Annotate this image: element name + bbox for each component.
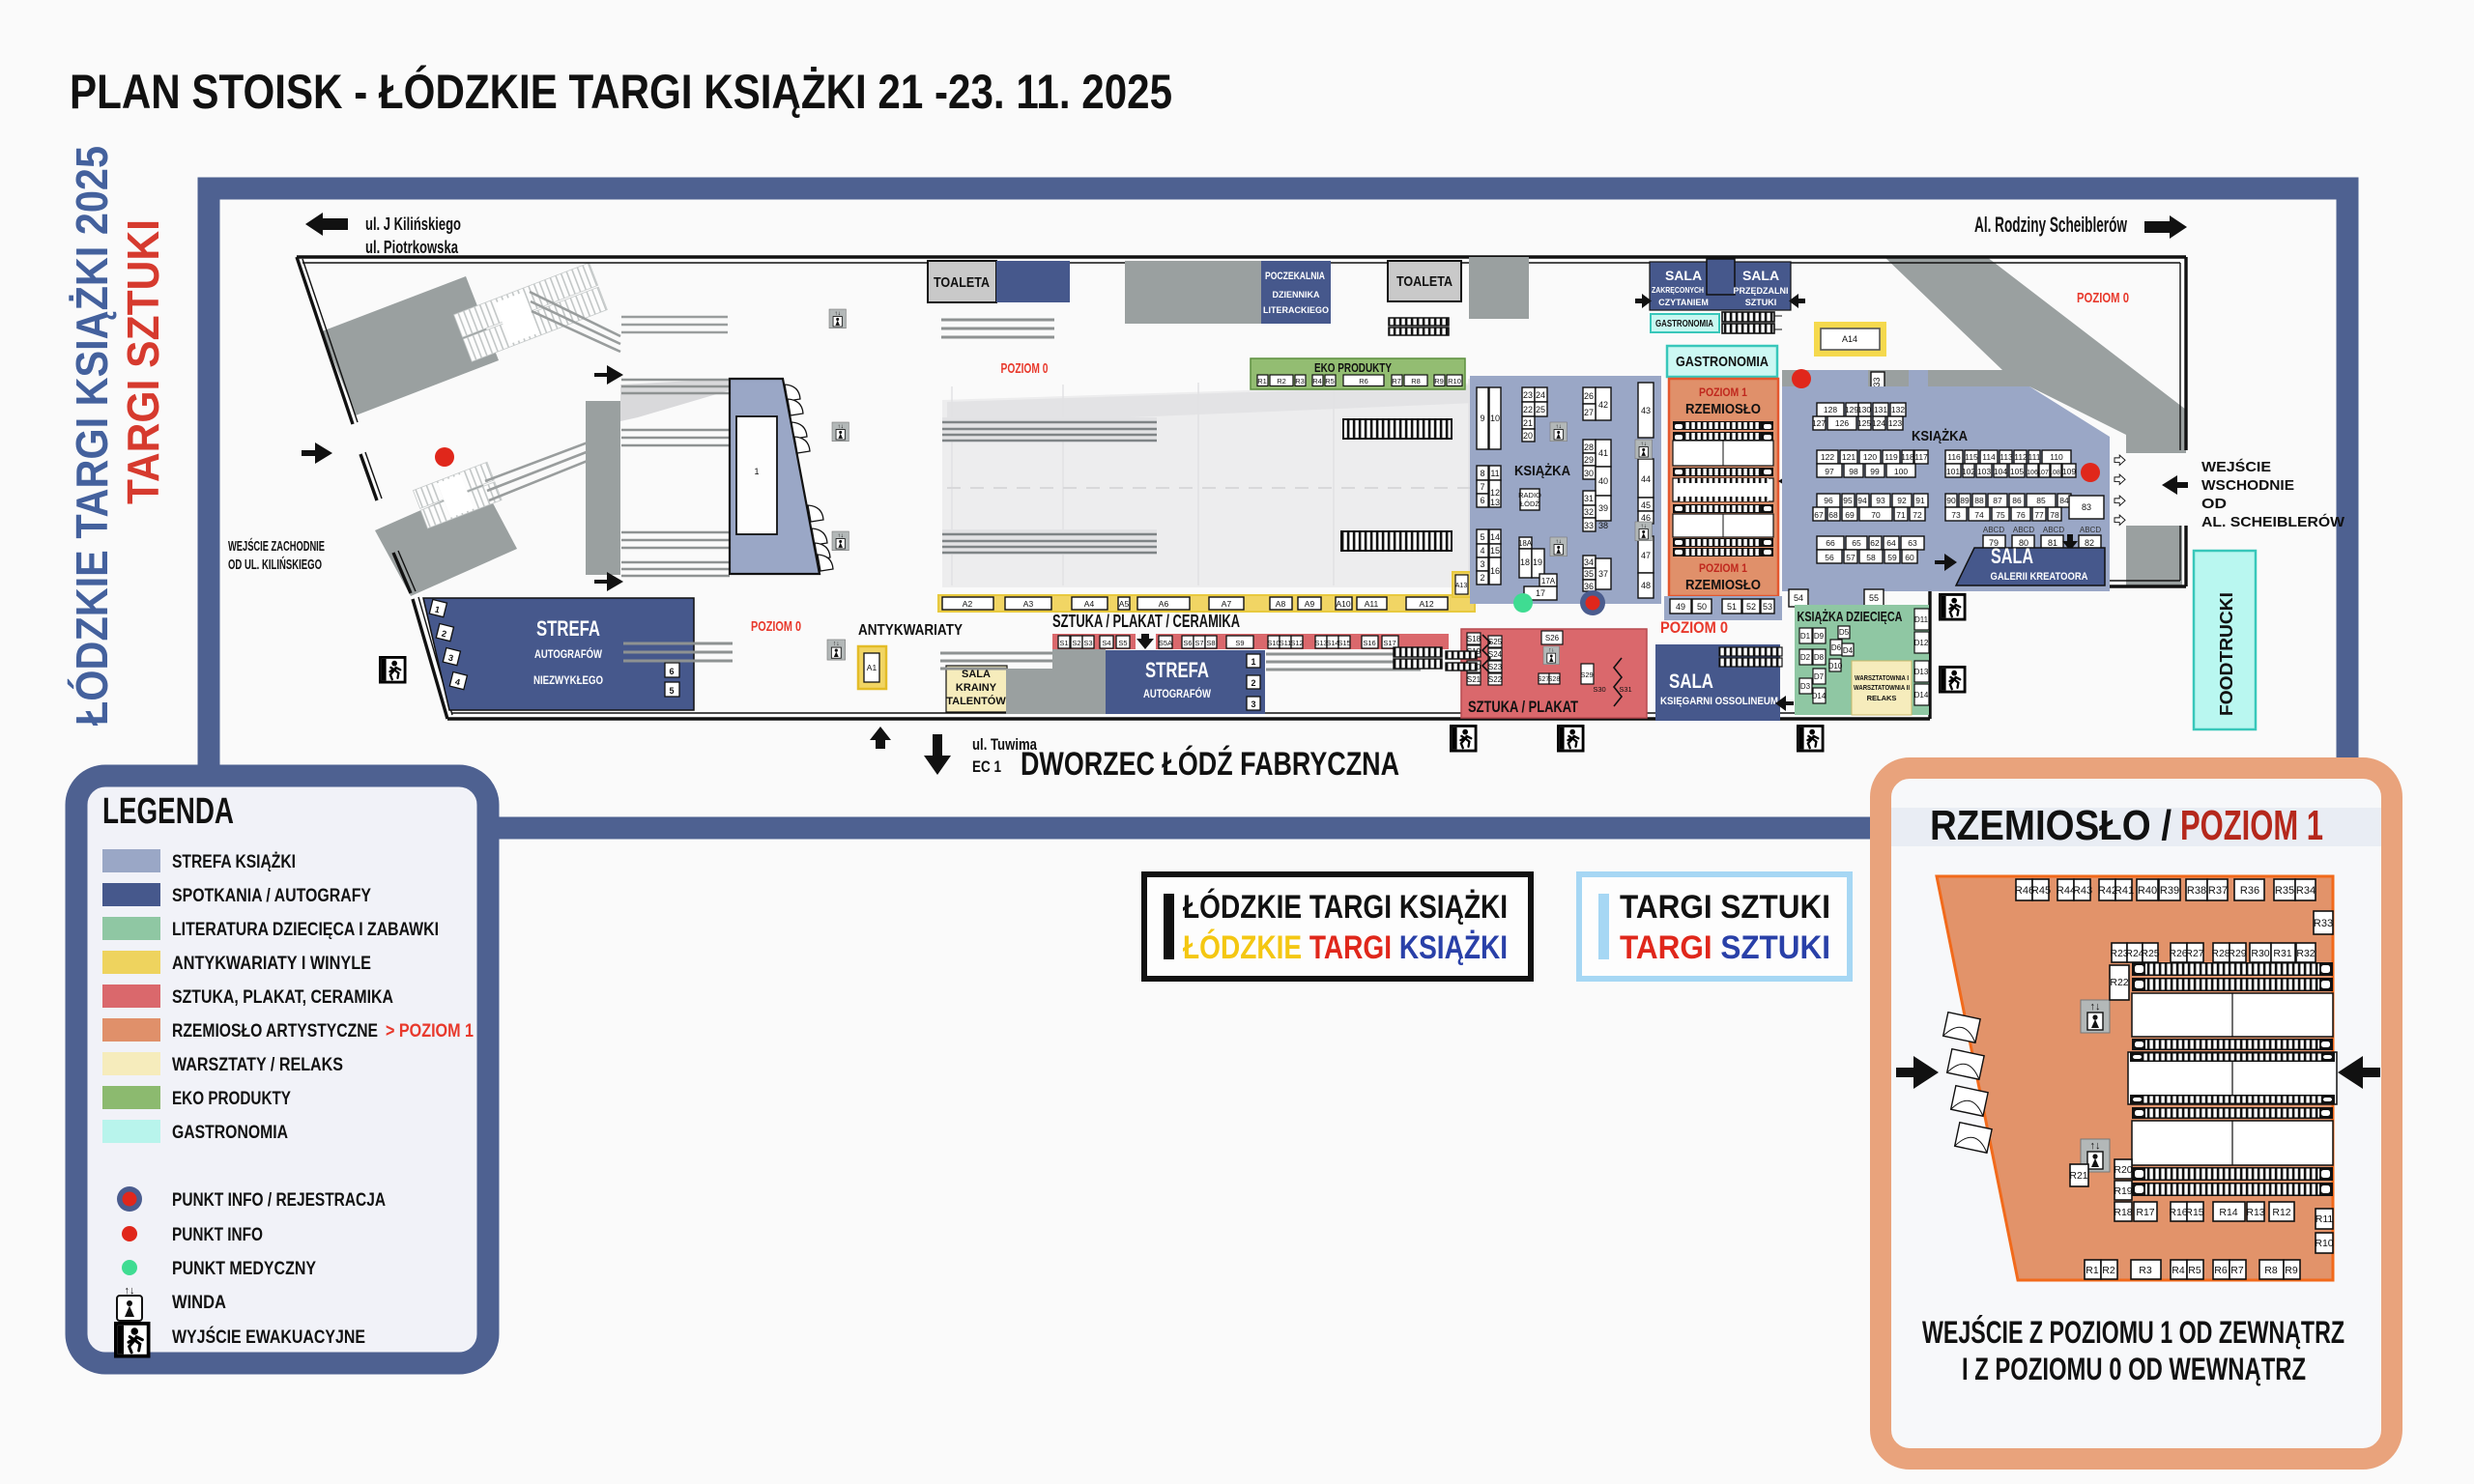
svg-text:108: 108 xyxy=(2049,470,2060,476)
svg-text:D7: D7 xyxy=(1814,672,1825,681)
svg-text:R41: R41 xyxy=(2114,885,2134,897)
svg-text:R10: R10 xyxy=(1448,377,1461,385)
svg-text:113: 113 xyxy=(1999,452,2013,462)
svg-text:117: 117 xyxy=(1914,452,1928,462)
svg-text:KRAINY: KRAINY xyxy=(956,682,997,694)
svg-text:104: 104 xyxy=(1994,467,2007,476)
svg-text:S4: S4 xyxy=(1102,639,1110,647)
svg-text:PUNKT INFO / REJESTRACJA: PUNKT INFO / REJESTRACJA xyxy=(172,1190,386,1211)
svg-text:S17: S17 xyxy=(1383,639,1395,647)
svg-text:102: 102 xyxy=(1962,467,1975,476)
svg-text:121: 121 xyxy=(1842,452,1855,462)
svg-text:RELAKS: RELAKS xyxy=(1867,694,1897,702)
svg-text:41: 41 xyxy=(1598,448,1608,458)
svg-text:11: 11 xyxy=(1490,469,1499,478)
svg-text:SALA: SALA xyxy=(1665,268,1702,283)
svg-text:KSIĄŻKA DZIECIĘCA: KSIĄŻKA DZIECIĘCA xyxy=(1798,609,1903,625)
svg-text:14: 14 xyxy=(1490,532,1500,542)
svg-text:59: 59 xyxy=(1887,553,1897,562)
svg-text:65: 65 xyxy=(1852,538,1861,548)
svg-text:FOODTRUCKI: FOODTRUCKI xyxy=(2217,592,2236,716)
svg-text:D6: D6 xyxy=(1831,643,1842,652)
svg-text:D3: D3 xyxy=(1800,682,1811,691)
svg-text:68: 68 xyxy=(1828,510,1838,520)
svg-text:KSIĄŻKA: KSIĄŻKA xyxy=(1912,428,1968,444)
svg-text:126: 126 xyxy=(1835,418,1849,428)
svg-text:40: 40 xyxy=(1598,476,1608,486)
svg-text:PUNKT INFO: PUNKT INFO xyxy=(172,1225,263,1245)
svg-text:POZIOM 1: POZIOM 1 xyxy=(1699,563,1748,575)
svg-text:AUTOGRAFÓW: AUTOGRAFÓW xyxy=(1143,686,1212,700)
svg-text:R22: R22 xyxy=(2110,977,2128,988)
svg-text:SALA: SALA xyxy=(1742,268,1779,283)
svg-text:A7: A7 xyxy=(1222,599,1232,609)
svg-text:47: 47 xyxy=(1641,551,1651,560)
svg-text:R3: R3 xyxy=(2139,1265,2152,1276)
svg-text:91: 91 xyxy=(1915,496,1925,505)
svg-text:R5: R5 xyxy=(2188,1265,2201,1276)
svg-text:R15: R15 xyxy=(2185,1207,2203,1218)
svg-text:R19: R19 xyxy=(2114,1185,2132,1197)
svg-text:> POZIOM 1: > POZIOM 1 xyxy=(386,1021,474,1042)
svg-text:R4: R4 xyxy=(1312,377,1322,385)
svg-text:RADIO: RADIO xyxy=(1518,491,1541,499)
svg-text:R33: R33 xyxy=(2314,918,2333,929)
svg-text:WARSZTATOWNIA I: WARSZTATOWNIA I xyxy=(1855,673,1909,682)
svg-text:R18: R18 xyxy=(2114,1207,2132,1218)
svg-text:22: 22 xyxy=(1523,405,1533,414)
svg-text:51: 51 xyxy=(1727,602,1737,612)
svg-text:R32: R32 xyxy=(2296,948,2315,959)
svg-text:S1: S1 xyxy=(1059,639,1068,647)
svg-text:48: 48 xyxy=(1641,581,1651,590)
svg-text:SALA: SALA xyxy=(962,669,991,680)
svg-text:90: 90 xyxy=(1946,496,1956,505)
svg-text:7: 7 xyxy=(1480,482,1484,492)
svg-text:54: 54 xyxy=(1794,593,1803,603)
svg-text:STREFA KSIĄŻKI: STREFA KSIĄŻKI xyxy=(172,852,296,872)
svg-text:89: 89 xyxy=(1960,496,1970,505)
svg-text:3: 3 xyxy=(1251,699,1255,709)
svg-text:R7: R7 xyxy=(2230,1265,2244,1276)
svg-text:73: 73 xyxy=(1951,510,1961,520)
svg-text:OD UL. KILIŃSKIEGO: OD UL. KILIŃSKIEGO xyxy=(228,556,322,573)
svg-text:POZIOM 1: POZIOM 1 xyxy=(2180,802,2323,849)
svg-text:S2: S2 xyxy=(1072,639,1080,647)
svg-text:ABCD: ABCD xyxy=(2043,526,2064,534)
svg-text:30: 30 xyxy=(1584,469,1594,478)
svg-text:SZTUKA / PLAKAT / CERAMIKA: SZTUKA / PLAKAT / CERAMIKA xyxy=(1052,612,1240,631)
svg-text:R8: R8 xyxy=(2264,1265,2278,1276)
svg-text:1: 1 xyxy=(754,467,759,476)
svg-text:WINDA: WINDA xyxy=(172,1293,226,1313)
svg-text:4: 4 xyxy=(1480,546,1484,556)
svg-text:KSIĘGARNI OSSOLINEUM: KSIĘGARNI OSSOLINEUM xyxy=(1660,696,1778,707)
svg-text:WARSZTATOWNIA II: WARSZTATOWNIA II xyxy=(1854,683,1910,692)
svg-text:R8: R8 xyxy=(1411,377,1421,385)
svg-text:R25: R25 xyxy=(2141,948,2159,959)
svg-text:66: 66 xyxy=(1826,538,1835,548)
svg-text:R43: R43 xyxy=(2073,885,2092,897)
svg-text:82: 82 xyxy=(2085,538,2094,548)
svg-text:52: 52 xyxy=(1746,602,1756,612)
svg-text:R5: R5 xyxy=(1325,377,1335,385)
svg-text:21: 21 xyxy=(1523,418,1533,428)
svg-text:POZIOM 0: POZIOM 0 xyxy=(2077,290,2129,306)
svg-text:46: 46 xyxy=(1641,513,1651,523)
svg-text:77: 77 xyxy=(2034,510,2044,520)
svg-text:LITERATURA DZIECIĘCA I ZABAWKI: LITERATURA DZIECIĘCA I ZABAWKI xyxy=(172,920,439,940)
svg-text:R29: R29 xyxy=(2228,948,2246,959)
svg-text:6: 6 xyxy=(669,667,674,676)
svg-text:28: 28 xyxy=(1584,442,1594,452)
svg-text:TARGI SZTUKI: TARGI SZTUKI xyxy=(118,219,168,504)
svg-text:RZEMIOSŁO /: RZEMIOSŁO / xyxy=(1930,802,2172,849)
svg-text:131: 131 xyxy=(1874,405,1887,414)
svg-text:R3: R3 xyxy=(1295,377,1305,385)
svg-text:S21: S21 xyxy=(1467,675,1482,684)
svg-text:TOALETA: TOALETA xyxy=(934,274,990,291)
svg-text:PUNKT MEDYCZNY: PUNKT MEDYCZNY xyxy=(172,1259,316,1279)
svg-text:SZTUKA, PLAKAT, CERAMIKA: SZTUKA, PLAKAT, CERAMIKA xyxy=(172,987,393,1008)
svg-text:ABCD: ABCD xyxy=(2080,526,2101,534)
svg-text:13: 13 xyxy=(1490,498,1500,507)
svg-text:56: 56 xyxy=(1825,553,1834,562)
svg-text:ul. Piotrkowska: ul. Piotrkowska xyxy=(365,238,459,257)
svg-text:S22: S22 xyxy=(1488,675,1503,684)
svg-text:S16: S16 xyxy=(1363,639,1375,647)
svg-text:6: 6 xyxy=(1480,496,1484,505)
svg-text:ZAKRĘCONYCH: ZAKRĘCONYCH xyxy=(1652,285,1704,295)
svg-text:SPOTKANIA / AUTOGRAFY: SPOTKANIA / AUTOGRAFY xyxy=(172,886,371,906)
svg-text:R37: R37 xyxy=(2208,885,2228,897)
svg-text:110: 110 xyxy=(2050,452,2063,462)
svg-text:2: 2 xyxy=(1480,573,1484,583)
svg-text:DWORZEC ŁÓDŹ FABRYCZNA: DWORZEC ŁÓDŹ FABRYCZNA xyxy=(1021,746,1399,783)
svg-text:17A: 17A xyxy=(1541,577,1556,585)
svg-text:GALERII KREATOORA: GALERII KREATOORA xyxy=(1991,571,2088,583)
svg-text:R34: R34 xyxy=(2296,885,2316,897)
svg-text:2: 2 xyxy=(1251,678,1255,688)
svg-text:112: 112 xyxy=(2014,452,2028,462)
svg-text:37: 37 xyxy=(1598,569,1608,579)
svg-text:ŁÓDZKIE TARGI KSIĄŻKI: ŁÓDZKIE TARGI KSIĄŻKI xyxy=(1183,929,1508,966)
svg-text:ABCD: ABCD xyxy=(2013,526,2034,534)
svg-text:R38: R38 xyxy=(2187,885,2206,897)
svg-text:55: 55 xyxy=(1869,593,1879,603)
svg-text:12: 12 xyxy=(1490,488,1500,498)
svg-text:R13: R13 xyxy=(2246,1207,2264,1218)
svg-text:84: 84 xyxy=(2059,496,2069,505)
svg-text:GASTRONOMIA: GASTRONOMIA xyxy=(1655,319,1713,329)
svg-text:75: 75 xyxy=(1996,510,2005,520)
svg-text:R10: R10 xyxy=(2315,1238,2333,1249)
svg-text:87: 87 xyxy=(1993,496,2002,505)
svg-text:POZIOM 0: POZIOM 0 xyxy=(1001,360,1049,377)
svg-text:D14: D14 xyxy=(1812,692,1827,700)
svg-text:18: 18 xyxy=(1520,557,1530,567)
svg-text:I Z POZIOMU 0 OD WEWNĄTRZ: I Z POZIOMU 0 OD WEWNĄTRZ xyxy=(1962,1352,2306,1386)
svg-text:D8: D8 xyxy=(1814,653,1825,662)
svg-text:98: 98 xyxy=(1849,467,1858,476)
svg-text:SALA: SALA xyxy=(1669,671,1713,693)
svg-text:111: 111 xyxy=(2028,452,2041,462)
svg-text:R36: R36 xyxy=(2240,885,2259,897)
svg-text:S30: S30 xyxy=(1593,685,1605,694)
svg-text:25: 25 xyxy=(1536,405,1545,414)
svg-text:95: 95 xyxy=(1843,496,1853,505)
svg-text:POZIOM 0: POZIOM 0 xyxy=(1660,618,1728,637)
svg-text:D11: D11 xyxy=(1914,615,1929,624)
svg-text:R17: R17 xyxy=(2136,1207,2154,1218)
svg-text:44: 44 xyxy=(1641,474,1651,484)
svg-text:ŁÓDŹ: ŁÓDŹ xyxy=(1520,499,1539,508)
svg-text:A1: A1 xyxy=(867,663,877,672)
svg-text:S26: S26 xyxy=(1545,634,1560,642)
svg-text:85: 85 xyxy=(2036,496,2046,505)
svg-text:D13: D13 xyxy=(1914,668,1929,676)
svg-text:35: 35 xyxy=(1584,569,1594,579)
svg-text:29: 29 xyxy=(1584,455,1594,465)
svg-text:D4: D4 xyxy=(1843,646,1854,655)
svg-text:R11: R11 xyxy=(2316,1213,2334,1225)
svg-text:EC 1: EC 1 xyxy=(972,757,1001,776)
svg-text:RZEMIOSŁO: RZEMIOSŁO xyxy=(1685,578,1761,593)
svg-text:AL. SCHEIBLERÓW: AL. SCHEIBLERÓW xyxy=(2201,513,2345,530)
svg-text:WEJŚCIE Z POZIOMU 1 OD ZEWNĄTR: WEJŚCIE Z POZIOMU 1 OD ZEWNĄTRZ xyxy=(1922,1315,2345,1350)
svg-text:R2: R2 xyxy=(1277,377,1286,385)
svg-text:45: 45 xyxy=(1641,500,1651,510)
svg-text:A10: A10 xyxy=(1336,599,1350,609)
svg-text:GASTRONOMIA: GASTRONOMIA xyxy=(172,1123,288,1143)
svg-text:R6: R6 xyxy=(1359,377,1368,385)
svg-text:5: 5 xyxy=(1480,532,1484,542)
svg-text:ŁÓDZKIE TARGI KSIĄŻKI 2025: ŁÓDZKIE TARGI KSIĄŻKI 2025 xyxy=(67,146,117,726)
svg-text:3: 3 xyxy=(1480,559,1484,569)
svg-text:18A: 18A xyxy=(1518,539,1533,548)
svg-text:S18: S18 xyxy=(1467,635,1482,643)
svg-text:TALENTÓW: TALENTÓW xyxy=(946,695,1006,707)
svg-text:R12: R12 xyxy=(2272,1207,2290,1218)
svg-text:S28: S28 xyxy=(1548,676,1561,683)
svg-text:16: 16 xyxy=(1490,566,1500,576)
svg-text:R31: R31 xyxy=(2273,948,2291,959)
svg-text:EKO PRODUKTY: EKO PRODUKTY xyxy=(172,1089,291,1109)
svg-text:19: 19 xyxy=(1533,557,1542,567)
svg-text:27: 27 xyxy=(1584,408,1594,417)
svg-text:R40: R40 xyxy=(2138,885,2157,897)
svg-text:103: 103 xyxy=(1977,467,1991,476)
svg-text:57: 57 xyxy=(1846,553,1855,562)
svg-text:S5A: S5A xyxy=(1159,639,1172,647)
svg-text:33: 33 xyxy=(1584,521,1594,530)
svg-text:17: 17 xyxy=(1536,588,1545,598)
svg-text:S7: S7 xyxy=(1194,639,1203,647)
svg-text:9: 9 xyxy=(1480,414,1484,423)
svg-text:ANTYKWARIATY I WINYLE: ANTYKWARIATY I WINYLE xyxy=(172,954,371,974)
svg-text:R35: R35 xyxy=(2275,885,2294,897)
svg-text:125: 125 xyxy=(1857,418,1871,428)
svg-text:DZIENNIKA: DZIENNIKA xyxy=(1273,290,1320,300)
svg-text:70: 70 xyxy=(1871,510,1881,520)
svg-text:32: 32 xyxy=(1584,507,1594,517)
svg-text:WEJŚCIE: WEJŚCIE xyxy=(2201,458,2271,475)
svg-text:53: 53 xyxy=(1763,602,1772,612)
svg-text:ANTYKWARIATY: ANTYKWARIATY xyxy=(858,622,963,639)
svg-text:R21: R21 xyxy=(2069,1170,2087,1182)
svg-text:71: 71 xyxy=(1896,510,1906,520)
svg-text:R2: R2 xyxy=(2102,1265,2115,1276)
svg-text:LITERACKIEGO: LITERACKIEGO xyxy=(1263,305,1329,315)
svg-text:TOALETA: TOALETA xyxy=(1396,273,1453,290)
svg-text:96: 96 xyxy=(1824,496,1833,505)
svg-text:Al. Rodziny Scheiblerów: Al. Rodziny Scheiblerów xyxy=(1974,213,2128,237)
svg-text:POZIOM 1: POZIOM 1 xyxy=(1699,387,1748,399)
svg-text:D14: D14 xyxy=(1914,691,1929,699)
svg-text:A2: A2 xyxy=(963,599,973,609)
svg-text:R1: R1 xyxy=(1257,377,1267,385)
svg-text:64: 64 xyxy=(1886,538,1896,548)
svg-text:A11: A11 xyxy=(1365,599,1379,609)
svg-text:SALA: SALA xyxy=(1991,544,2033,568)
svg-text:50: 50 xyxy=(1697,602,1707,612)
svg-text:132: 132 xyxy=(1891,405,1905,414)
svg-text:S29: S29 xyxy=(1580,671,1593,679)
svg-text:38: 38 xyxy=(1598,521,1608,530)
svg-text:116: 116 xyxy=(1947,452,1961,462)
svg-text:NIEZWYKŁEGO: NIEZWYKŁEGO xyxy=(533,673,603,687)
svg-text:OD: OD xyxy=(2201,496,2227,512)
svg-text:72: 72 xyxy=(1913,510,1922,520)
svg-text:94: 94 xyxy=(1857,496,1867,505)
svg-text:120: 120 xyxy=(1863,452,1877,462)
svg-text:POZIOM 0: POZIOM 0 xyxy=(751,618,801,635)
svg-text:RZEMIOSŁO ARTYSTYCZNE: RZEMIOSŁO ARTYSTYCZNE xyxy=(172,1021,378,1042)
svg-text:POCZEKALNIA: POCZEKALNIA xyxy=(1265,271,1325,282)
svg-text:88: 88 xyxy=(1974,496,1984,505)
svg-text:ul. J Kilińskiego: ul. J Kilińskiego xyxy=(365,214,461,234)
svg-text:127: 127 xyxy=(1812,418,1826,428)
svg-text:A9: A9 xyxy=(1305,599,1315,609)
svg-text:ŁÓDZKIE TARGI KSIĄŻKI: ŁÓDZKIE TARGI KSIĄŻKI xyxy=(1183,889,1508,926)
svg-text:81: 81 xyxy=(2048,538,2057,548)
svg-text:GASTRONOMIA: GASTRONOMIA xyxy=(1676,354,1769,370)
svg-text:PLAN STOISK - ŁÓDZKIE TARGI KS: PLAN STOISK - ŁÓDZKIE TARGI KSIĄŻKI 21 -… xyxy=(70,65,1172,119)
svg-text:83: 83 xyxy=(2082,502,2091,512)
svg-text:A6: A6 xyxy=(1159,599,1169,609)
svg-text:AUTOGRAFÓW: AUTOGRAFÓW xyxy=(534,646,603,661)
svg-text:A8: A8 xyxy=(1276,599,1286,609)
svg-text:67: 67 xyxy=(1814,510,1824,520)
svg-text:93: 93 xyxy=(1876,496,1885,505)
svg-text:R45: R45 xyxy=(2031,885,2051,897)
svg-text:TARGI SZTUKI: TARGI SZTUKI xyxy=(1620,889,1830,926)
svg-text:1: 1 xyxy=(1251,657,1255,667)
svg-text:62: 62 xyxy=(1870,538,1880,548)
svg-text:5: 5 xyxy=(669,686,674,696)
svg-text:A12: A12 xyxy=(1419,599,1433,609)
svg-text:31: 31 xyxy=(1584,494,1594,503)
svg-text:36: 36 xyxy=(1584,582,1594,591)
svg-text:118: 118 xyxy=(1901,452,1914,462)
svg-text:WARSZTATY / RELAKS: WARSZTATY / RELAKS xyxy=(172,1055,343,1075)
svg-text:43: 43 xyxy=(1641,406,1651,415)
svg-text:122: 122 xyxy=(1821,452,1834,462)
svg-text:D12: D12 xyxy=(1914,639,1929,647)
svg-text:RZEMIOSŁO: RZEMIOSŁO xyxy=(1685,402,1761,417)
svg-text:R9: R9 xyxy=(2285,1265,2298,1276)
svg-text:S8: S8 xyxy=(1206,639,1215,647)
svg-text:PRZĘDZALNI: PRZĘDZALNI xyxy=(1734,286,1789,296)
svg-text:KSIĄŻKA: KSIĄŻKA xyxy=(1514,463,1570,479)
svg-text:D5: D5 xyxy=(1839,628,1850,637)
svg-text:S23: S23 xyxy=(1488,663,1503,671)
svg-text:R39: R39 xyxy=(2160,885,2179,897)
svg-text:92: 92 xyxy=(1897,496,1907,505)
svg-text:128: 128 xyxy=(1824,405,1837,414)
svg-text:76: 76 xyxy=(2016,510,2026,520)
svg-text:23: 23 xyxy=(1523,390,1533,400)
svg-text:WSCHODNIE: WSCHODNIE xyxy=(2201,477,2294,494)
svg-text:R27: R27 xyxy=(2185,948,2203,959)
svg-text:A13: A13 xyxy=(1455,583,1468,589)
svg-text:LEGENDA: LEGENDA xyxy=(102,791,234,832)
svg-text:78: 78 xyxy=(2050,510,2059,520)
svg-text:101: 101 xyxy=(1946,467,1960,476)
svg-text:EKO PRODUKTY: EKO PRODUKTY xyxy=(1314,360,1392,375)
svg-text:115: 115 xyxy=(1965,452,1978,462)
svg-text:S3: S3 xyxy=(1083,639,1092,647)
svg-text:CZYTANIEM: CZYTANIEM xyxy=(1658,298,1709,307)
svg-text:105: 105 xyxy=(2010,467,2024,476)
svg-text:S12: S12 xyxy=(1290,639,1303,647)
svg-text:S6: S6 xyxy=(1183,639,1192,647)
svg-text:SZTUKI: SZTUKI xyxy=(1745,298,1777,307)
svg-text:39: 39 xyxy=(1598,503,1608,513)
svg-text:34: 34 xyxy=(1584,557,1594,567)
svg-text:114: 114 xyxy=(1982,452,1996,462)
svg-text:86: 86 xyxy=(2012,496,2022,505)
svg-text:S5: S5 xyxy=(1118,639,1127,647)
svg-text:74: 74 xyxy=(1974,510,1984,520)
svg-text:R6: R6 xyxy=(2214,1265,2228,1276)
svg-text:TARGI SZTUKI: TARGI SZTUKI xyxy=(1620,929,1830,966)
svg-text:8: 8 xyxy=(1480,469,1484,478)
svg-text:60: 60 xyxy=(1905,553,1914,562)
svg-text:49: 49 xyxy=(1676,602,1685,612)
svg-text:42: 42 xyxy=(1598,400,1608,410)
svg-text:ABCD: ABCD xyxy=(1983,526,2004,534)
svg-text:119: 119 xyxy=(1884,452,1898,462)
svg-text:STREFA: STREFA xyxy=(536,616,600,641)
svg-text:R1: R1 xyxy=(2086,1265,2099,1276)
svg-text:15: 15 xyxy=(1490,546,1500,556)
svg-text:R14: R14 xyxy=(2219,1207,2237,1218)
svg-text:R20: R20 xyxy=(2114,1164,2132,1176)
svg-text:S31: S31 xyxy=(1619,685,1631,694)
svg-text:123: 123 xyxy=(1888,418,1902,428)
svg-text:69: 69 xyxy=(1845,510,1855,520)
svg-text:130: 130 xyxy=(1857,405,1871,414)
svg-text:D9: D9 xyxy=(1814,632,1825,641)
svg-text:R4: R4 xyxy=(2172,1265,2185,1276)
svg-text:26: 26 xyxy=(1584,391,1594,401)
svg-text:STREFA: STREFA xyxy=(1145,658,1209,682)
svg-text:S15: S15 xyxy=(1338,639,1350,647)
svg-text:24: 24 xyxy=(1536,390,1545,400)
svg-text:100: 100 xyxy=(1894,467,1908,476)
svg-text:A14: A14 xyxy=(1842,334,1857,344)
